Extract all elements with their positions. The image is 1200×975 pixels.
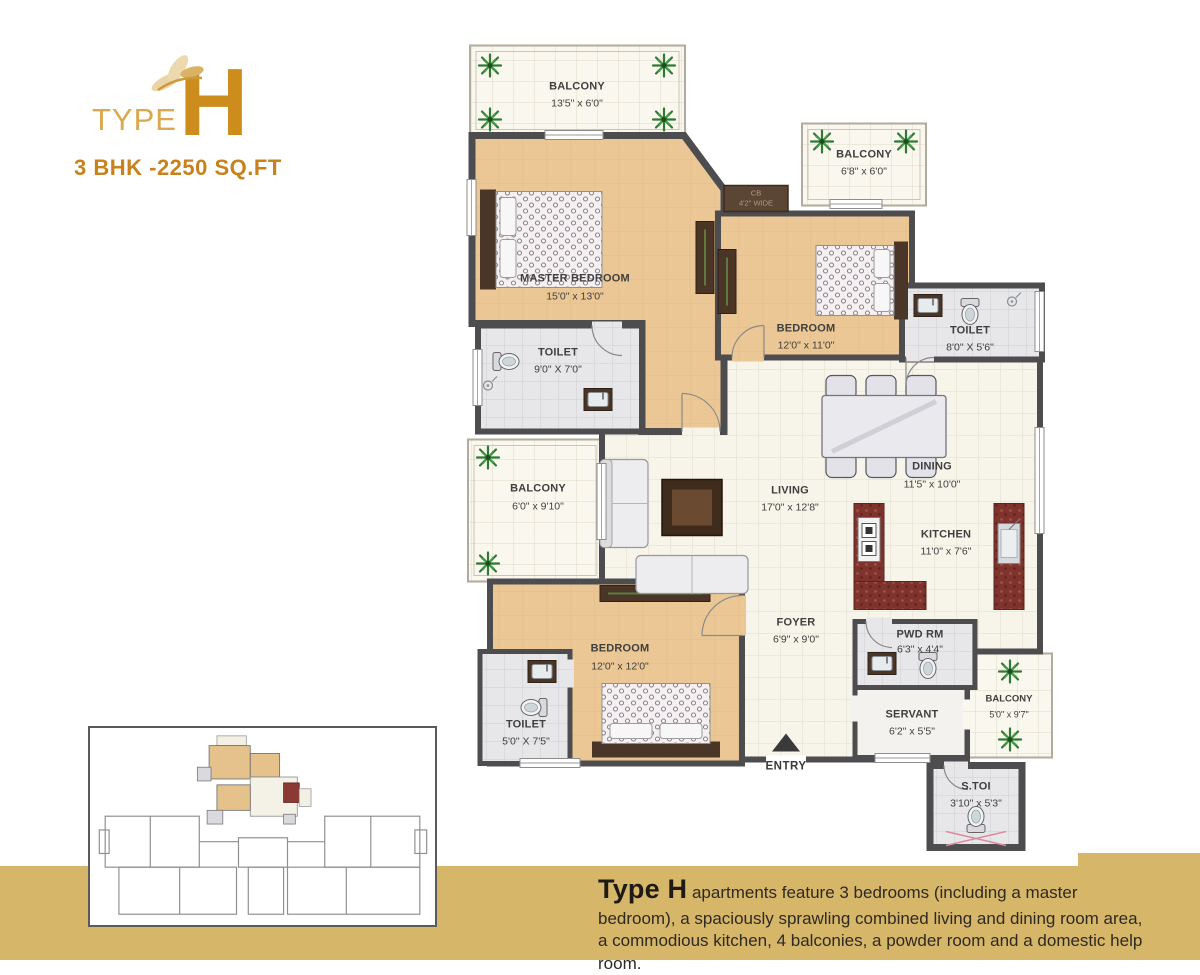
dims-servant-toilet: 3'10" x 5'3" [950, 798, 1002, 810]
sink-icon-toilet3 [528, 661, 556, 683]
toilet-master-floor [478, 326, 642, 432]
sink-icon-master [584, 389, 612, 411]
type-h-logo: TYPE H 3 BHK -2250 SQ.FT [72, 66, 372, 181]
label-balcony-right: BALCONY [986, 694, 1034, 705]
bedroom-3-bed [592, 684, 720, 758]
label-foyer: FOYER [777, 617, 816, 629]
description: Type H apartments feature 3 bedrooms (in… [598, 872, 1150, 975]
dims-balcony-top: 13'5" x 6'0" [551, 98, 603, 110]
label-bedroom-3: BEDROOM [591, 643, 650, 655]
entry-label: ENTRY [765, 761, 806, 773]
dims-toilet-master: 9'0" X 7'0" [534, 364, 582, 376]
balcony-upper-right [802, 124, 926, 206]
key-plan-building-outline [99, 816, 426, 914]
label-balcony-left: BALCONY [510, 483, 566, 495]
key-plan-highlighted-unit [197, 736, 311, 824]
label-bedroom-2: BEDROOM [777, 323, 836, 335]
banner-step [1078, 853, 1200, 867]
label-toilet-2: TOILET [950, 325, 990, 337]
dims-toilet-2: 8'0" X 5'6" [946, 342, 994, 354]
dims-foyer: 6'9" x 9'0" [773, 634, 819, 646]
stove-icon [858, 518, 880, 562]
label-servant: SERVANT [886, 709, 939, 721]
servant-room-floor [855, 688, 967, 758]
dims-balcony-upper-right: 6'8" x 6'0" [841, 166, 887, 178]
toilet-icon-toilet3 [521, 699, 547, 717]
sink-icon-powder [868, 653, 896, 675]
toilet-icon-master [493, 353, 519, 371]
dims-toilet-3: 5'0" X 7'5" [502, 736, 550, 748]
dims-servant: 6'2" x 5'5" [889, 726, 935, 738]
toilet-icon-servant [967, 807, 985, 833]
unit-spec: 3 BHK -2250 SQ.FT [74, 155, 372, 181]
label-servant-toilet: S.TOI [961, 781, 991, 793]
label-toilet-master: TOILET [538, 347, 578, 359]
label-powder-room: PWD RM [896, 629, 943, 641]
label-kitchen: KITCHEN [921, 529, 971, 541]
dims-powder-room: 6'3" x 4'4" [897, 644, 943, 656]
label-toilet-3: TOILET [506, 719, 546, 731]
dims-balcony-right: 5'0" x 9'7" [989, 710, 1028, 720]
dims-bedroom-3: 12'0" x 12'0" [591, 661, 649, 673]
label-balcony-top: BALCONY [549, 81, 605, 93]
label-living: LIVING [771, 485, 809, 497]
cupboard-label: CB [751, 189, 761, 198]
bedroom-2-bed [816, 242, 908, 320]
dims-bedroom-2: 12'0" x 11'0" [778, 340, 835, 352]
coffee-table [662, 480, 722, 536]
label-master-bedroom: MASTER BEDROOM [520, 273, 630, 285]
label-dining: DINING [912, 461, 952, 473]
dims-kitchen: 11'0" x 7'6" [921, 546, 972, 558]
dims-living: 17'0" x 12'8" [761, 502, 819, 514]
toilet-icon-toilet2 [961, 299, 979, 325]
dims-balcony-left: 6'0" x 9'10" [512, 501, 564, 513]
cupboard-dims: 4'2" WIDE [739, 199, 773, 208]
sink-icon-toilet2 [914, 295, 942, 317]
dims-master-bedroom: 15'0" x 13'0" [546, 291, 604, 303]
page: TYPE H 3 BHK -2250 SQ.FT [0, 0, 1200, 960]
key-plan [88, 726, 437, 927]
cupboard-strip: CB 4'2" WIDE [724, 186, 788, 212]
leaf-icon [144, 42, 214, 98]
logo-type-label: TYPE [92, 104, 177, 141]
toilet-icon-powder [919, 653, 937, 679]
kitchen-sink-icon [998, 520, 1020, 564]
floor-plan: CB 4'2" WIDE [450, 38, 1062, 856]
label-balcony-upper-right: BALCONY [836, 149, 892, 161]
dims-dining: 11'5" x 10'0" [904, 479, 961, 491]
description-title: Type H [598, 874, 687, 904]
